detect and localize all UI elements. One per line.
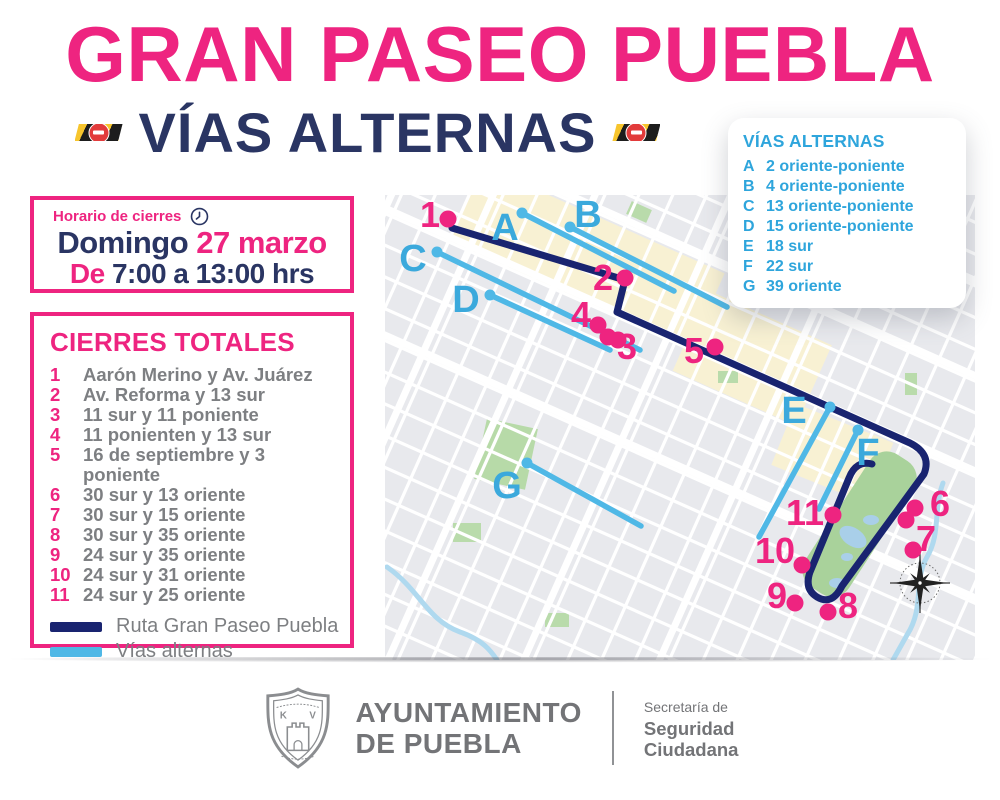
map-number-label: 8: [838, 585, 858, 626]
map-letter-label: G: [492, 465, 522, 507]
closure-dot: [707, 339, 724, 356]
via-item: A2 oriente-poniente: [743, 157, 958, 177]
map-letter-label: F: [856, 432, 879, 474]
org-line2: DE PUEBLA: [356, 728, 582, 759]
schedule-date: 27 marzo: [196, 225, 326, 260]
vias-list: A2 oriente-ponienteB4 oriente-ponienteC1…: [743, 157, 958, 297]
closure-item: 1Aarón Merino y Av. Juárez: [50, 365, 340, 385]
subtitle: VÍAS ALTERNAS: [139, 100, 597, 165]
map-letter-label: C: [399, 238, 426, 280]
vias-panel-title: VÍAS ALTERNAS: [743, 131, 958, 152]
alt-route-dot: [432, 247, 443, 258]
via-item: C13 oriente-poniente: [743, 197, 958, 217]
closure-item: 730 sur y 15 oriente: [50, 505, 340, 525]
map-letter-label: D: [452, 279, 479, 321]
closure-dot: [898, 512, 915, 529]
map-letter-label: E: [781, 390, 806, 432]
closure-item: 630 sur y 13 oriente: [50, 485, 340, 505]
closure-dot: [820, 604, 837, 621]
closure-item: 924 sur y 35 oriente: [50, 545, 340, 565]
schedule-label: Horario de cierres: [53, 208, 181, 225]
map-letter-label: A: [491, 207, 518, 249]
map-number-label: 4: [571, 294, 591, 335]
closure-item: 411 ponienten y 13 sur: [50, 425, 340, 445]
legend-swatch: [50, 647, 102, 657]
closure-dot: [787, 595, 804, 612]
shield-letter-v: V: [309, 710, 316, 721]
map-number-label: 7: [916, 518, 936, 559]
org-name: AYUNTAMIENTO DE PUEBLA: [356, 697, 582, 759]
footer-separator: [612, 691, 614, 765]
dept-line3: Ciudadana: [644, 739, 739, 760]
closure-item: 516 de septiembre y 3 poniente: [50, 445, 340, 485]
map-letter-label: B: [574, 195, 601, 236]
schedule-date-line: Domingo 27 marzo: [44, 227, 340, 259]
alt-route-dot: [825, 402, 836, 413]
closure-dot: [590, 317, 607, 334]
closure-item: 1024 sur y 31 oriente: [50, 565, 340, 585]
shield-letter-k: K: [279, 710, 286, 721]
footer: K V AYUNTAMIENTO DE PUEBLA Secretaría de…: [0, 686, 1000, 770]
map-number-label: 10: [755, 530, 795, 571]
subtitle-row: VÍAS ALTERNAS: [0, 100, 735, 165]
footer-divider: [0, 657, 1000, 666]
via-item: G39 oriente: [743, 277, 958, 297]
map-number-label: 2: [593, 257, 613, 298]
schedule-from: De: [70, 258, 105, 289]
main-title: GRAN PASEO PUEBLA: [0, 14, 1000, 96]
vias-alternas-panel: VÍAS ALTERNAS A2 oriente-ponienteB4 orie…: [728, 118, 966, 308]
closure-item: 830 sur y 35 oriente: [50, 525, 340, 545]
road-closed-icon: [612, 124, 660, 141]
department-name: Secretaría de Seguridad Ciudadana: [644, 697, 739, 760]
closure-dot: [440, 211, 457, 228]
puebla-coat-of-arms: K V: [262, 686, 334, 770]
schedule-day: Domingo: [57, 225, 188, 260]
no-entry-icon: [88, 122, 109, 143]
schedule-label-row: Horario de cierres: [44, 206, 340, 226]
map-number-label: 11: [786, 492, 824, 533]
via-item: F22 sur: [743, 257, 958, 277]
map-number-label: 3: [617, 326, 637, 367]
map-number-label: 1: [420, 195, 440, 235]
alt-route-dot: [485, 290, 496, 301]
closure-item: 311 sur y 11 poniente: [50, 405, 340, 425]
clock-icon: [190, 207, 209, 226]
closure-dot: [794, 557, 811, 574]
map-number-label: 9: [767, 575, 787, 616]
closure-dot: [825, 507, 842, 524]
schedule-time: 7:00 a 13:00 hrs: [112, 258, 314, 289]
map-number-label: 5: [684, 330, 704, 371]
closure-item: 2Av. Reforma y 13 sur: [50, 385, 340, 405]
poster: GRAN PASEO PUEBLA VÍAS ALTERNAS: [0, 0, 1000, 800]
closure-item: 1124 sur y 25 oriente: [50, 585, 340, 605]
legend-item: Ruta Gran Paseo Puebla: [50, 614, 340, 639]
closures-title: CIERRES TOTALES: [50, 327, 340, 358]
via-item: E18 sur: [743, 237, 958, 257]
alt-route-dot: [522, 458, 533, 469]
no-entry-icon: [626, 122, 647, 143]
closure-dot: [617, 270, 634, 287]
org-line1: AYUNTAMIENTO: [356, 697, 582, 728]
via-item: B4 oriente-poniente: [743, 177, 958, 197]
closures-list: 1Aarón Merino y Av. Juárez2Av. Reforma y…: [50, 365, 340, 605]
road-closed-icon: [75, 124, 123, 141]
legend-swatch: [50, 622, 102, 632]
via-item: D15 oriente-poniente: [743, 217, 958, 237]
schedule-time-line: De 7:00 a 13:00 hrs: [44, 259, 340, 288]
dept-line1: Secretaría de: [644, 697, 739, 718]
dept-line2: Seguridad: [644, 718, 739, 739]
closures-box: CIERRES TOTALES 1Aarón Merino y Av. Juár…: [30, 312, 354, 648]
schedule-box: Horario de cierres Domingo 27 marzo De 7…: [30, 196, 354, 293]
